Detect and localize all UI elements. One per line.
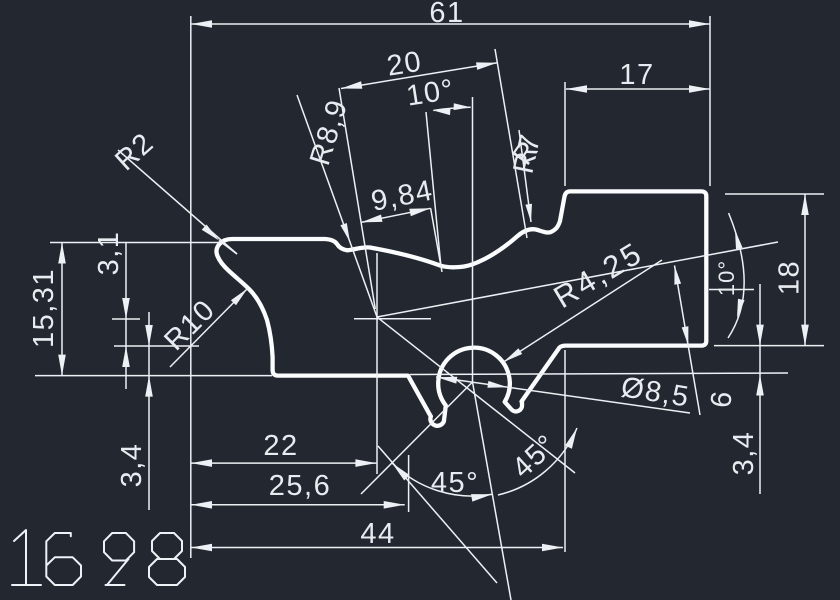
svg-text:17: 17 bbox=[619, 59, 654, 91]
svg-text:44: 44 bbox=[360, 518, 395, 550]
svg-text:20: 20 bbox=[385, 46, 425, 83]
svg-text:18: 18 bbox=[774, 260, 806, 295]
svg-text:3,4: 3,4 bbox=[116, 443, 148, 488]
svg-text:45°: 45° bbox=[431, 467, 479, 499]
svg-text:3,4: 3,4 bbox=[728, 431, 760, 476]
svg-text:22: 22 bbox=[263, 430, 298, 462]
svg-text:15,31: 15,31 bbox=[28, 268, 60, 348]
svg-text:3,1: 3,1 bbox=[93, 231, 125, 276]
svg-text:25,6: 25,6 bbox=[269, 470, 331, 502]
svg-text:10°: 10° bbox=[714, 260, 739, 296]
svg-text:61: 61 bbox=[429, 0, 464, 29]
